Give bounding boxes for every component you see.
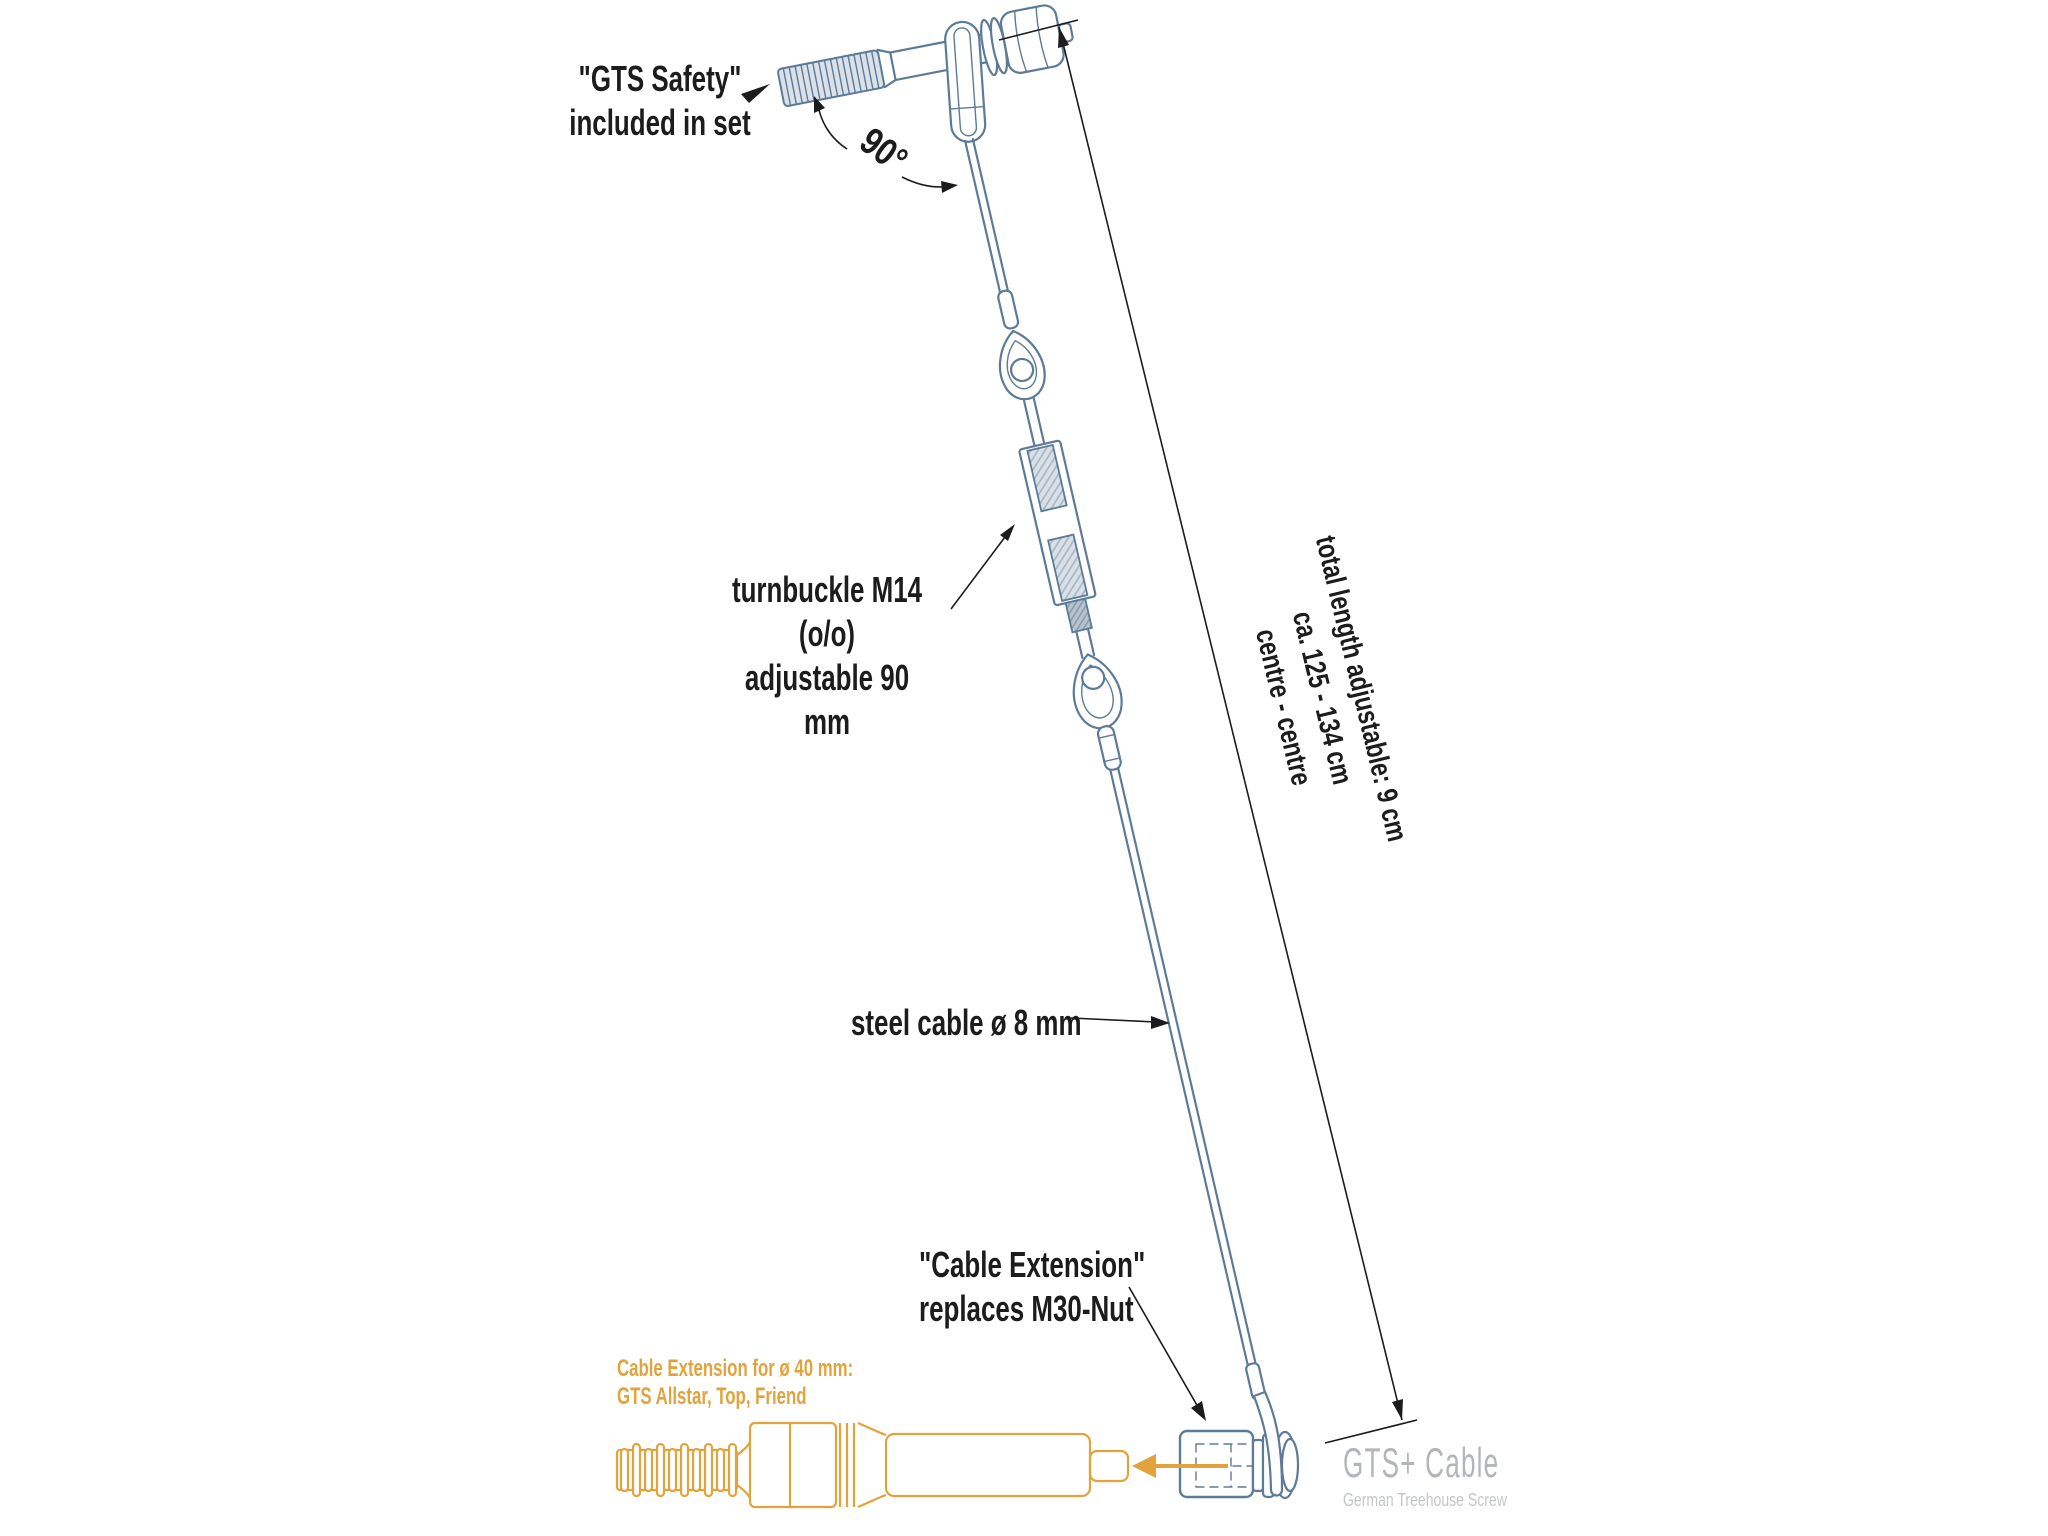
turnbuckle-label-line1: turnbuckle M14 (o/o) xyxy=(719,568,935,656)
cable-eye-loop xyxy=(944,21,986,143)
gts-safety-label: "GTS Safety" included in set xyxy=(552,57,768,145)
swage-sleeve xyxy=(1097,725,1122,771)
turnbuckle-label-line2: adjustable 90 mm xyxy=(719,656,935,744)
orange-note-line1: Cable Extension for ø 40 mm: xyxy=(617,1355,853,1383)
orange-note-line2: GTS Allstar, Top, Friend xyxy=(617,1383,853,1411)
turnbuckle-stud xyxy=(1066,599,1092,633)
brand-logo: GTS+ Cable German Treehouse Screw xyxy=(1343,1439,1595,1511)
screw-collar xyxy=(750,1423,836,1507)
orange-note-label: Cable Extension for ø 40 mm: GTS Allstar… xyxy=(617,1355,853,1411)
cable-extension-label-line1: "Cable Extension" xyxy=(919,1243,1145,1287)
gts-safety-label-line2: included in set xyxy=(552,101,768,145)
steel-cable-leader-arrow xyxy=(1071,1016,1170,1029)
cable-extension-label-line2: replaces M30-Nut xyxy=(919,1287,1145,1331)
screw-shaft xyxy=(886,1434,1090,1496)
bolt-thread xyxy=(777,50,884,107)
cable-and-turnbuckle xyxy=(946,135,1282,1404)
turnbuckle-leader-arrow xyxy=(951,524,1015,609)
gts-safety-label-line1: "GTS Safety" xyxy=(552,57,768,101)
brand-title: GTS+ Cable xyxy=(1343,1439,1499,1487)
swage-ferrule-upper xyxy=(997,289,1019,329)
gts-safety-bolt xyxy=(775,1,1077,118)
screw-ribs xyxy=(840,1423,854,1507)
hex-nut xyxy=(999,3,1066,75)
steel-cable-upper xyxy=(965,139,1008,295)
thimble-lower xyxy=(1065,649,1127,733)
technical-diagram-page: "GTS Safety" included in set 90° turnbuc… xyxy=(0,0,2048,1536)
turnbuckle-label: turnbuckle M14 (o/o) adjustable 90 mm xyxy=(719,568,935,744)
brand-subtitle: German Treehouse Screw xyxy=(1343,1490,1540,1511)
turnbuckle xyxy=(1019,440,1103,635)
cable-extension-label: "Cable Extension" replaces M30-Nut xyxy=(919,1243,1145,1331)
screw-thread xyxy=(621,1444,736,1496)
screw-stub xyxy=(1090,1451,1128,1481)
orange-screw xyxy=(617,1423,1128,1507)
steel-cable-label: steel cable ø 8 mm xyxy=(851,1003,1082,1043)
